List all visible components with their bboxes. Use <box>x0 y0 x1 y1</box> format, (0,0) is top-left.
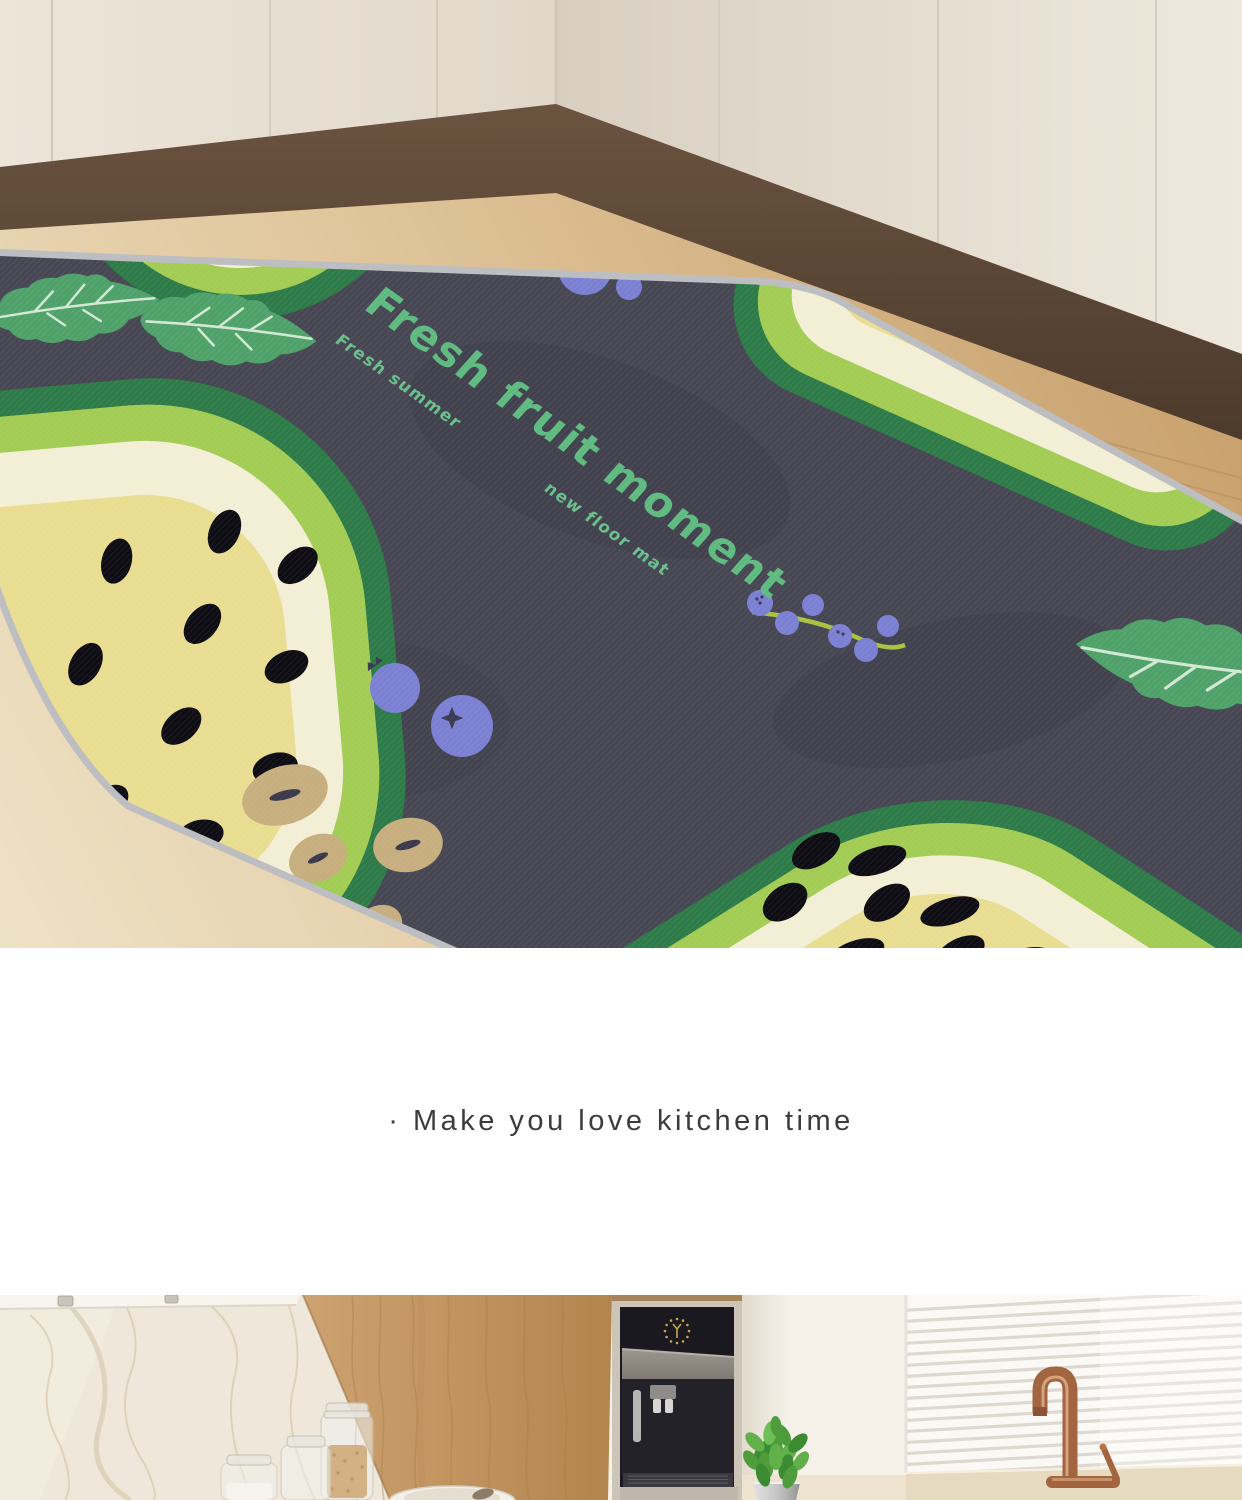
jar-small <box>221 1455 277 1500</box>
caption-section: · Make you love kitchen time <box>0 948 1242 1295</box>
drip-tray <box>620 1473 738 1500</box>
caption-text: · Make you love kitchen time <box>388 1105 853 1138</box>
cabinet-handle <box>58 1296 73 1306</box>
plant-pot <box>753 1483 800 1500</box>
bottom-photo-illustration <box>0 1295 1242 1500</box>
top-photo-illustration: Fresh fruit moment Fresh summer new floo… <box>0 0 1242 948</box>
kitchen-photo-top: Fresh fruit moment Fresh summer new floo… <box>0 0 1242 948</box>
kitchen-photo-bottom <box>0 1295 1242 1500</box>
cabinet-handle <box>165 1295 178 1303</box>
jar-medium <box>281 1436 331 1500</box>
product-detail-page: Fresh fruit moment Fresh summer new floo… <box>0 0 1242 1500</box>
coffee-machine <box>612 1295 742 1500</box>
window-blinds <box>876 1295 1242 1477</box>
faucet-base <box>1046 1476 1120 1488</box>
